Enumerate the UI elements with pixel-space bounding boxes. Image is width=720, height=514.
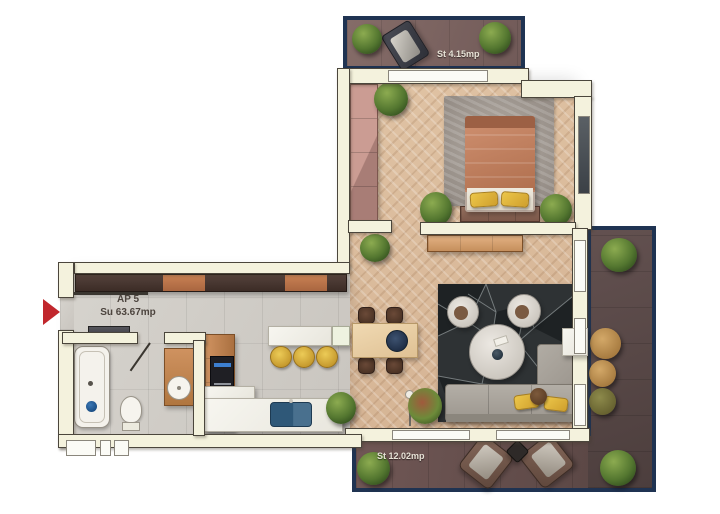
dining-table xyxy=(352,323,418,358)
living-terrace-door-bottom-1 xyxy=(392,430,470,440)
lounge-cushion xyxy=(389,29,421,63)
side-table-1 xyxy=(447,296,479,328)
kitchen-island-end xyxy=(332,326,350,346)
terrace-pouf-2 xyxy=(589,360,616,387)
bath-sink xyxy=(167,376,191,400)
bathtub xyxy=(74,346,110,428)
terrace-top-area-label: St 4.15mp xyxy=(437,49,480,59)
coffee-table-book xyxy=(493,335,509,347)
terrace-right-bush-bottom-icon xyxy=(600,450,636,486)
bar-stool-1 xyxy=(270,346,292,368)
terrace-bottom-area-label: St 12.02mp xyxy=(377,451,425,461)
oven-display xyxy=(214,363,231,367)
sink-faucet xyxy=(289,399,293,403)
unit-label: AP 5 xyxy=(92,294,164,307)
floor-plan-canvas: St 4.15mp St 12.02mp xyxy=(0,0,720,514)
kitchen-plant-icon xyxy=(326,392,356,424)
terrace-top-bush-right-icon xyxy=(479,22,511,54)
hall-closet-door-1 xyxy=(163,275,205,291)
dining-chair-4 xyxy=(386,357,403,374)
bed-pillow-right xyxy=(501,191,530,208)
bar-stool-3 xyxy=(316,346,338,368)
bedroom-window xyxy=(578,116,590,194)
dining-centerpiece xyxy=(386,330,408,352)
coffee-table xyxy=(469,324,525,380)
kitchen-island xyxy=(268,326,332,346)
bathtub-inner xyxy=(79,351,105,423)
entrance-threshold xyxy=(60,298,74,330)
side-table-tray xyxy=(515,305,529,319)
side-table-2 xyxy=(507,294,541,328)
living-sideboard xyxy=(427,235,523,252)
living-plant-topleft-icon xyxy=(360,234,390,262)
wall-right-wing-left xyxy=(337,68,350,268)
living-terrace-door-bottom-2 xyxy=(496,430,570,440)
bed xyxy=(465,116,535,212)
wall-left-lower xyxy=(58,330,74,448)
toilet xyxy=(120,396,142,423)
bathtub-drain xyxy=(88,381,93,386)
wall-bathroom-top xyxy=(62,332,138,344)
terrace-pouf-3 xyxy=(589,388,616,415)
armchair-cushion xyxy=(531,441,567,478)
living-terrace-door-right xyxy=(574,384,586,426)
terrace-pouf-1 xyxy=(590,328,621,359)
bedroom-plant-left-icon xyxy=(420,192,452,226)
bed-pillow-left xyxy=(470,191,499,208)
bath-window-3 xyxy=(114,440,129,456)
living-window-2 xyxy=(574,318,586,354)
coffee-table-bowl xyxy=(492,349,503,360)
hall-closet xyxy=(75,274,347,292)
bathtub-faucet xyxy=(86,401,97,412)
dining-chair-1 xyxy=(358,307,375,324)
armchair-cushion xyxy=(468,444,504,481)
entrance-arrow-icon xyxy=(43,299,60,325)
unit-area-label: Su 63.67mp xyxy=(84,307,172,320)
bar-stool-2 xyxy=(293,346,315,368)
wall-bedroom-divider-left xyxy=(348,220,392,233)
terrace-right-bush-top-icon xyxy=(601,238,637,272)
toilet-tank xyxy=(122,422,140,431)
bedroom-wardrobe xyxy=(350,84,378,222)
dining-chair-2 xyxy=(386,307,403,324)
dining-chair-3 xyxy=(358,357,375,374)
bath-window-2 xyxy=(100,440,111,456)
bedroom-terrace-door xyxy=(388,70,488,82)
sofa-pillow-yellow-2 xyxy=(543,396,569,413)
living-window-1 xyxy=(574,240,586,292)
wall-left-upper xyxy=(58,262,74,298)
living-plant-icon xyxy=(408,388,442,424)
sofa-back-edge xyxy=(446,414,574,422)
bath-window-1 xyxy=(66,440,96,456)
oven-handle xyxy=(214,383,231,385)
bed-duvet-fold xyxy=(465,116,535,128)
wall-bedroom-divider-right xyxy=(420,222,576,235)
hall-closet-door-2 xyxy=(285,275,327,291)
terrace-top-bush-left-icon xyxy=(352,24,382,54)
side-table-tray xyxy=(454,306,468,320)
bedroom-plant-top-icon xyxy=(374,82,408,116)
bath-sink-drain xyxy=(177,386,181,390)
sofa-pillow-brown xyxy=(530,388,547,405)
wall-hall-top xyxy=(74,262,350,274)
wall-bath-kitchen-divider xyxy=(193,340,205,436)
kitchen-sink xyxy=(270,402,312,427)
